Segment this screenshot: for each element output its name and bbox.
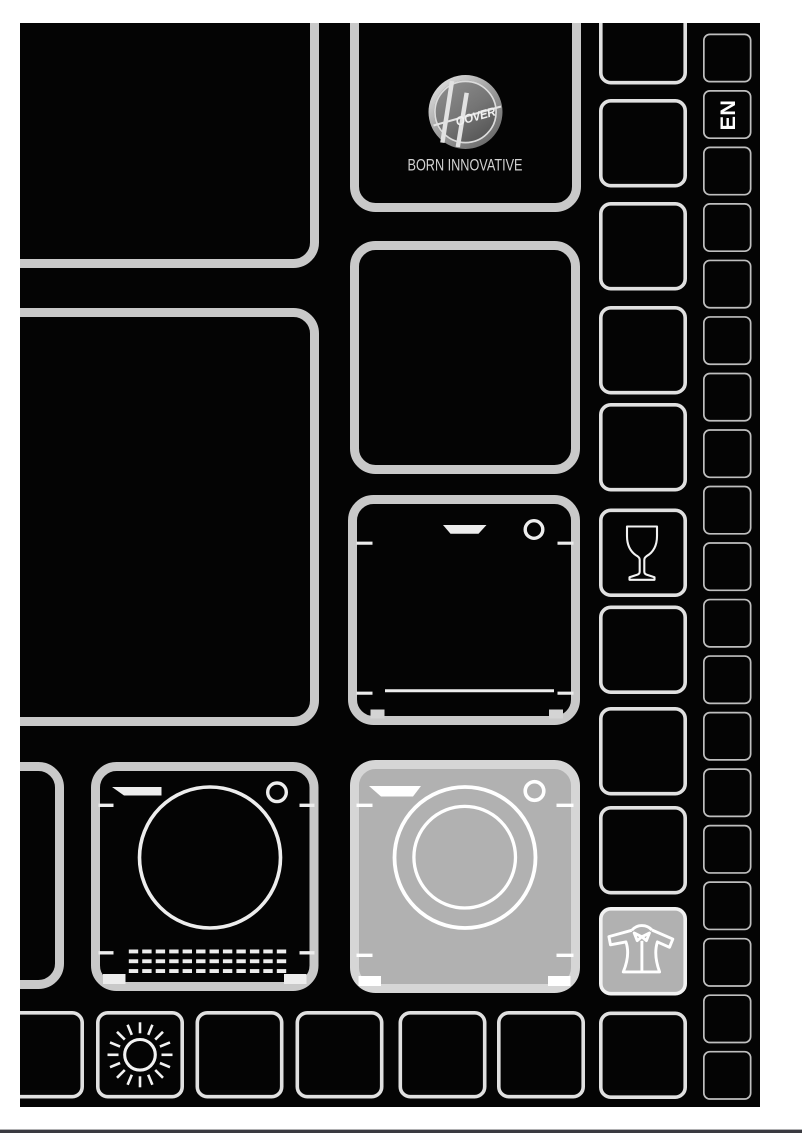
svg-text:BORN INNOVATIVE: BORN INNOVATIVE	[408, 157, 523, 175]
svg-text:EN: EN	[716, 100, 740, 131]
